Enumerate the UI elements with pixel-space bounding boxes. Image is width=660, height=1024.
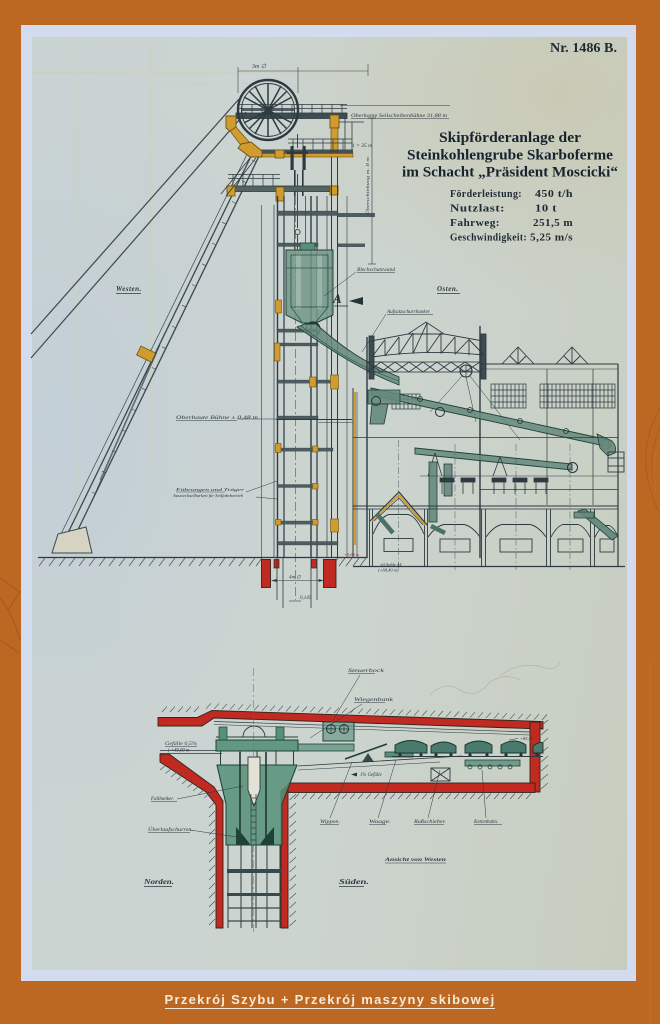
svg-text:0,145: 0,145 xyxy=(300,596,312,601)
svg-text:Süden.: Süden. xyxy=(339,878,369,886)
svg-text:( +49,00 m: ( +49,00 m xyxy=(168,749,190,754)
svg-text:Förderleistung:: Förderleistung: xyxy=(450,189,522,200)
svg-text:Geschwindigkeit:: Geschwindigkeit: xyxy=(450,233,527,244)
svg-text:Auswechselbarkeit für Seilfahr: Auswechselbarkeit für Seilfahrbetrieb xyxy=(172,493,244,498)
svg-text:Nutzlast:: Nutzlast: xyxy=(450,204,505,215)
svg-text:Osten.: Osten. xyxy=(437,285,458,293)
svg-text:Westen.: Westen. xyxy=(116,285,142,293)
svg-text:1 = 35 m: 1 = 35 m xyxy=(352,143,372,149)
svg-text:Überlaufschurren.: Überlaufschurren. xyxy=(148,827,193,833)
svg-text:Fahrweg:: Fahrweg: xyxy=(450,218,500,229)
svg-text:Steinkohlengrube Skarboferme: Steinkohlengrube Skarboferme xyxy=(407,148,614,164)
svg-text:Ansicht von Westen: Ansicht von Westen xyxy=(384,857,446,863)
svg-text:450 t/h: 450 t/h xyxy=(535,189,573,200)
svg-text:3m ∅: 3m ∅ xyxy=(251,63,267,70)
svg-text:4m ∅: 4m ∅ xyxy=(289,575,301,581)
svg-text:±0 Sohle 44: ±0 Sohle 44 xyxy=(380,562,402,567)
svg-text:A: A xyxy=(332,291,342,306)
svg-text:5,25 m/s: 5,25 m/s xyxy=(530,233,573,244)
svg-text:Nr. 1486 B.: Nr. 1486 B. xyxy=(550,40,617,55)
svg-text:1% Gefälle: 1% Gefälle xyxy=(360,773,383,778)
svg-text:Überschiebung m. 8 m: Überschiebung m. 8 m xyxy=(365,156,370,215)
svg-text:Norden.: Norden. xyxy=(143,878,175,886)
svg-text:251,5 m: 251,5 m xyxy=(533,218,573,229)
svg-text:10 t: 10 t xyxy=(535,204,557,215)
svg-text:Skipförderanlage der: Skipförderanlage der xyxy=(439,130,582,146)
svg-text:im Schacht „Präsident Moscicki: im Schacht „Präsident Moscicki“ xyxy=(402,165,618,181)
svg-text:Führungen und Träger: Führungen und Träger xyxy=(174,487,244,492)
svg-text:(+68,40 m): (+68,40 m) xyxy=(378,568,399,574)
